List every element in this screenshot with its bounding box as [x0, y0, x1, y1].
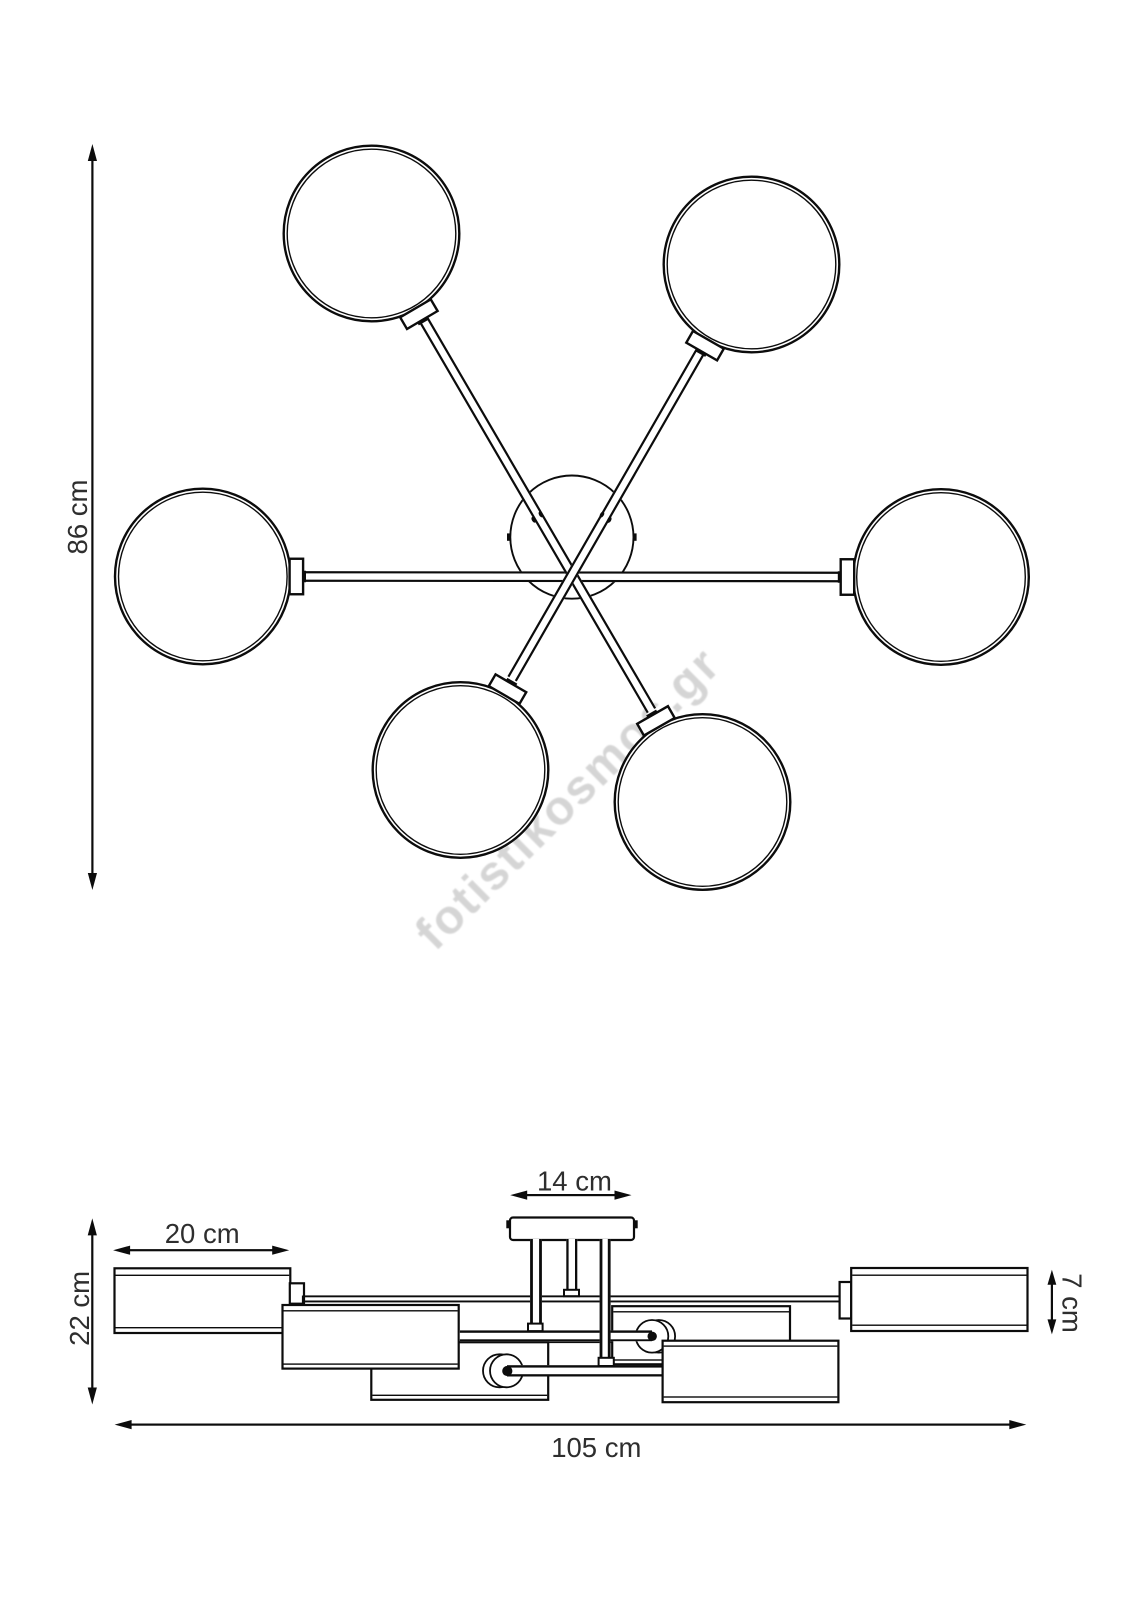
svg-text:105 cm: 105 cm	[551, 1432, 641, 1463]
svg-text:86 cm: 86 cm	[62, 480, 93, 555]
svg-text:22 cm: 22 cm	[64, 1271, 95, 1346]
svg-text:14 cm: 14 cm	[537, 1166, 612, 1197]
svg-text:7 cm: 7 cm	[1057, 1273, 1088, 1333]
svg-text:20 cm: 20 cm	[165, 1218, 240, 1249]
